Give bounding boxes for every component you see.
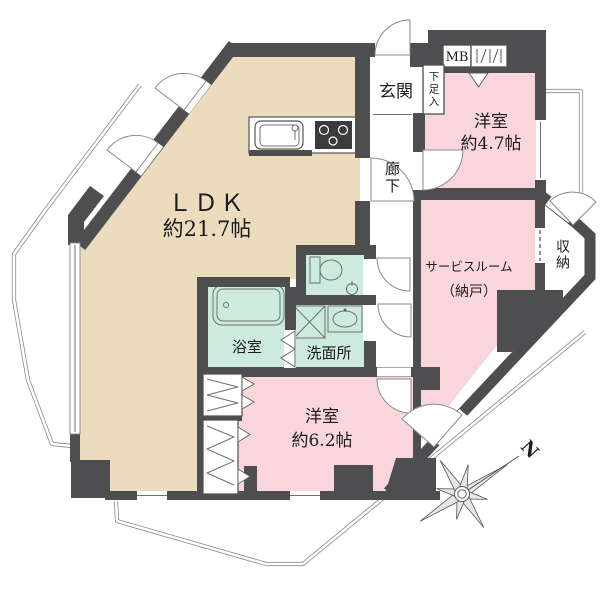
label-service-room: サービスルーム [425, 259, 512, 274]
floorplan-svg: ＬＤＫ 約21.7帖 玄関 下足入 MB 廊下 洋室 約4.7帖 サービスルーム… [0, 0, 600, 600]
label-washroom: 洗面所 [306, 344, 351, 362]
label-corridor: 廊下 [383, 161, 401, 195]
label-ldk: ＬＤＫ [168, 189, 246, 217]
pipe-space-hatch [471, 45, 507, 67]
label-entrance: 玄関 [379, 82, 413, 102]
kitchen-counter-icon [249, 117, 357, 156]
label-meter-box: MB [446, 50, 469, 65]
label-shoe-storage: 下足入 [428, 71, 440, 109]
room-toilet [303, 253, 368, 299]
label-bedroom62: 洋室 [305, 407, 339, 427]
label-bathroom: 浴室 [232, 338, 262, 356]
label-ldk-size: 約21.7帖 [163, 217, 252, 241]
label-bedroom47: 洋室 [474, 112, 508, 132]
floorplan-image: ＬＤＫ 約21.7帖 玄関 下足入 MB 廊下 洋室 約4.7帖 サービスルーム… [0, 0, 600, 600]
label-bedroom62-size: 約6.2帖 [291, 431, 352, 451]
label-service-room-sub: （納戸） [441, 284, 497, 300]
label-storage: 収納 [554, 239, 570, 271]
label-bedroom47-size: 約4.7帖 [460, 134, 521, 154]
